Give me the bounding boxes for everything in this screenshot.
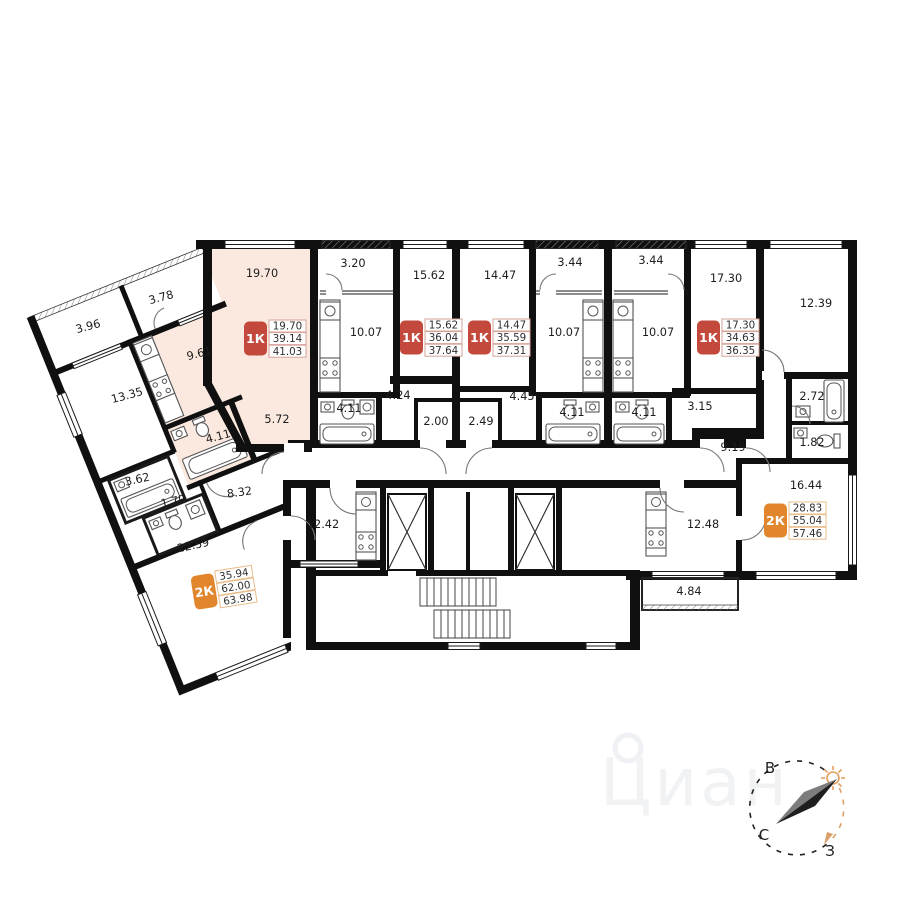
room-area-label: 3.20 bbox=[340, 257, 365, 270]
compass-letter-east: В bbox=[765, 759, 775, 777]
room-area-label: 19.70 bbox=[246, 267, 278, 280]
kitchen-counter-icon bbox=[613, 300, 633, 392]
bathtub-icon bbox=[824, 380, 844, 422]
svg-text:55.04: 55.04 bbox=[793, 515, 822, 527]
badge-type: 2К bbox=[766, 513, 786, 528]
sink-icon bbox=[149, 517, 163, 530]
balcony-partitions bbox=[320, 288, 688, 296]
svg-text:36.04: 36.04 bbox=[429, 332, 458, 344]
apartment-badge-1k: 1К 19.70 39.14 41.03 bbox=[244, 320, 306, 358]
badge-type: 1К bbox=[699, 330, 719, 345]
room-area-label: 9.19 bbox=[720, 441, 745, 454]
svg-text:17.30: 17.30 bbox=[726, 320, 755, 332]
room-area-label: 14.47 bbox=[484, 269, 516, 282]
compass-letter-west: З bbox=[825, 842, 835, 860]
badge-type: 1К bbox=[402, 330, 422, 345]
bathtub-icon bbox=[614, 424, 664, 444]
room-area-label: 22.59 bbox=[176, 536, 210, 555]
compass-letter-north: С bbox=[759, 826, 769, 844]
kitchen-counter-icon bbox=[356, 492, 376, 560]
room-area-label: 3.44 bbox=[557, 256, 582, 269]
room-area-label: 10.07 bbox=[642, 326, 674, 339]
washing-machine-icon bbox=[360, 400, 374, 414]
svg-text:37.31: 37.31 bbox=[497, 345, 526, 357]
bathtub-icon bbox=[320, 424, 374, 444]
svg-text:19.70: 19.70 bbox=[273, 321, 302, 333]
svg-text:57.46: 57.46 bbox=[793, 528, 822, 540]
room-area-label: 12.42 bbox=[307, 518, 339, 531]
svg-text:41.03: 41.03 bbox=[273, 346, 302, 358]
room-area-label: 2.72 bbox=[799, 390, 824, 403]
room-area-label: 12.48 bbox=[687, 518, 719, 531]
room-area-label: 10.07 bbox=[350, 326, 382, 339]
apartment-badge-2k: 2К 35.94 62.00 63.98 bbox=[190, 565, 257, 612]
washing-machine-icon bbox=[186, 500, 206, 520]
badge-type: 1К bbox=[246, 331, 266, 346]
room-area-label: 4.11 bbox=[631, 406, 656, 419]
apartment-badge-2k: 2К 28.83 55.04 57.46 bbox=[764, 502, 826, 540]
sink-icon bbox=[616, 402, 629, 412]
room-area-label: 10.07 bbox=[548, 326, 580, 339]
floor-plan: 19.70 9.61 5.72 4.11 3.78 3.96 13.35 3.6… bbox=[0, 0, 900, 900]
kitchen-counter-icon bbox=[583, 300, 603, 392]
apartment-badge-1k: 1К 15.62 36.04 37.64 bbox=[400, 319, 462, 357]
svg-text:34.63: 34.63 bbox=[726, 332, 755, 344]
room-area-label: 3.44 bbox=[638, 254, 663, 267]
room-area-label: 3.15 bbox=[687, 400, 712, 413]
room-area-label: 5.72 bbox=[264, 413, 289, 426]
watermark-text: Циан bbox=[600, 744, 790, 821]
svg-text:37.64: 37.64 bbox=[429, 345, 458, 357]
toilet-icon bbox=[165, 509, 183, 531]
room-area-label: 15.62 bbox=[413, 269, 445, 282]
elevator-shaft bbox=[388, 494, 426, 570]
apartment-badge-1k: 1К 17.30 34.63 36.35 bbox=[697, 319, 759, 357]
svg-text:28.83: 28.83 bbox=[793, 503, 822, 515]
sink-icon bbox=[321, 402, 334, 412]
room-area-label: 12.39 bbox=[800, 297, 832, 310]
watermark: Циан bbox=[600, 735, 790, 821]
room-area-label: 4.11 bbox=[559, 406, 584, 419]
bathtub-icon bbox=[546, 424, 600, 444]
room-area-label: 2.00 bbox=[423, 415, 448, 428]
room-area-label: 16.44 bbox=[790, 479, 822, 492]
kitchen-counter-icon bbox=[320, 300, 340, 392]
svg-text:35.59: 35.59 bbox=[497, 332, 526, 344]
badge-type: 2К bbox=[194, 582, 216, 600]
room-area-label: 4.24 bbox=[385, 389, 410, 402]
elevator-shaft bbox=[516, 494, 554, 570]
room-area-label: 4.11 bbox=[336, 402, 361, 415]
sink-icon bbox=[586, 402, 599, 412]
floor-plan-page: 19.70 9.61 5.72 4.11 3.78 3.96 13.35 3.6… bbox=[0, 0, 900, 900]
svg-text:14.47: 14.47 bbox=[497, 320, 526, 332]
kitchen-counter-icon bbox=[646, 492, 666, 556]
room-area-label: 13.35 bbox=[110, 385, 145, 406]
apartment-badge-1k: 1К 14.47 35.59 37.31 bbox=[468, 319, 530, 357]
svg-text:36.35: 36.35 bbox=[726, 345, 755, 357]
room-area-label: 4.45 bbox=[509, 390, 534, 403]
room-area-label: 1.82 bbox=[799, 436, 824, 449]
staircase bbox=[420, 578, 510, 638]
badge-type: 1К bbox=[470, 330, 490, 345]
room-area-label: 2.49 bbox=[468, 415, 493, 428]
svg-text:39.14: 39.14 bbox=[273, 333, 302, 345]
room-area-label: 17.30 bbox=[710, 272, 742, 285]
room-area-label: 8.32 bbox=[226, 484, 253, 500]
room-area-label: 4.84 bbox=[676, 585, 701, 598]
svg-text:15.62: 15.62 bbox=[429, 320, 458, 332]
